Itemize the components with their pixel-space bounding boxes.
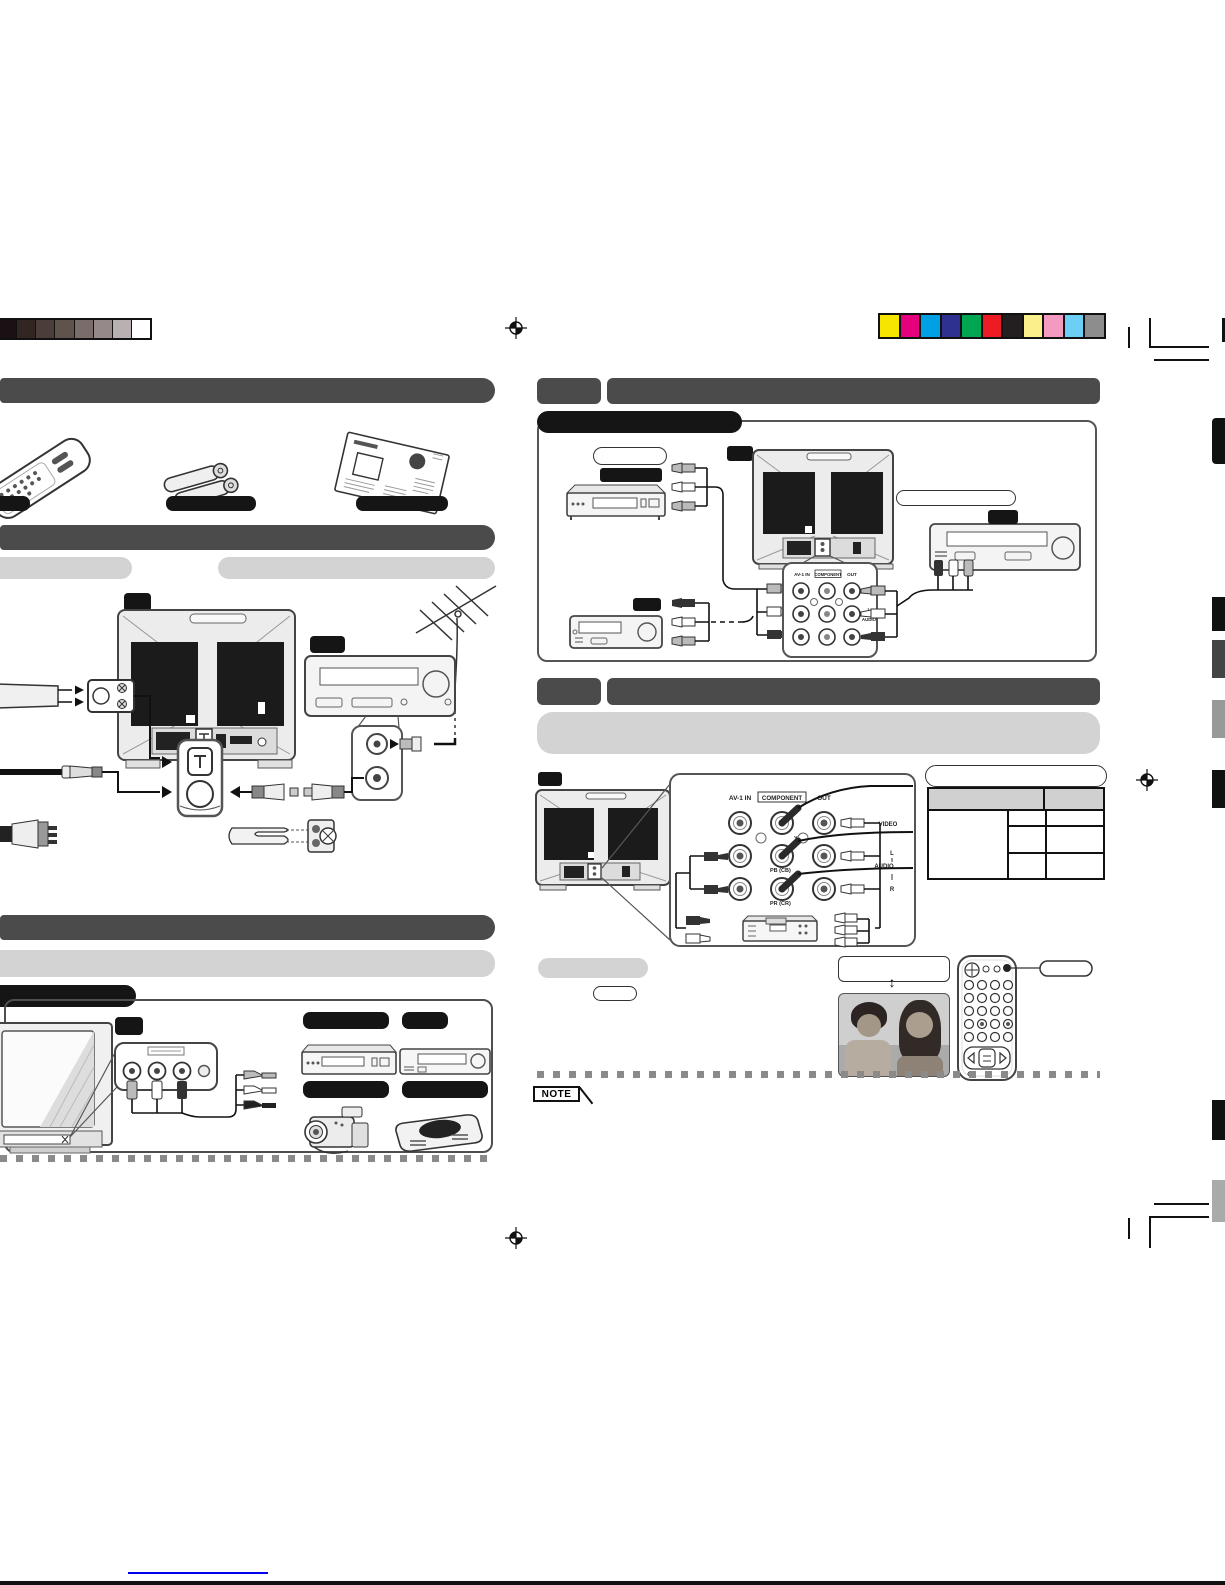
grayscale-calibration-strip [0,318,152,340]
cable-prep-adapter [229,820,336,852]
device-label-vcr [988,510,1018,524]
color-swatch [1083,315,1104,337]
av-connection-tab [537,411,742,433]
component-connection-diagram: AV-1 IN COMPONENT OUT Y PB (CB) PR (CR) … [530,768,920,955]
table-cell-span [929,809,1009,878]
note-label: NOTE [542,1089,572,1100]
color-swatch [899,315,920,337]
jack-row-l: L [890,851,894,857]
rear-jack-panel-callout: AV-1 IN COMPONENT OUT VIDEO L AUDIO R [783,563,877,657]
rca-cable-trio-dvd [672,463,723,580]
subheading-pill-2 [218,557,495,579]
photo-boy-face [857,1014,881,1037]
jack-col-av1in: AV-1 IN [729,795,752,802]
color-swatch [919,315,940,337]
registration-crosshair-right [1136,769,1158,791]
button-callout-pill [1040,961,1092,976]
vcr-illustration-left [570,616,662,648]
trim-mark [1128,1218,1130,1239]
tv-rear-illustration [536,790,670,890]
table-header-row [929,789,1103,811]
accessory-label-manual [356,496,448,511]
color-swatch [1022,315,1043,337]
component-subheading-bar [537,712,1100,754]
grayscale-swatch [112,320,131,338]
edge-mark [1212,418,1225,464]
grayscale-swatch [131,320,150,338]
subheading-pill [538,958,648,978]
step-tag [538,772,562,786]
button-callout-pill [593,986,637,1001]
device-label-camcorder [303,1081,389,1098]
remote-nav-cluster [964,1047,1010,1069]
manual-page: GAME [0,0,1225,1585]
device-callout-vcr [896,490,1016,506]
section-header-front-av [0,915,495,940]
signal-table [927,787,1105,880]
edge-mark [1212,700,1225,738]
step-tag [310,636,345,653]
trim-mark [1149,1216,1151,1248]
dvd-player-illustration [567,485,665,520]
jack-row-r: R [890,887,895,893]
device-label-game [402,1081,488,1098]
device-label-vcr [402,1012,448,1029]
rca-cable-trio-vcr-left [672,598,741,646]
trim-mark [1128,327,1130,348]
accessory-label-batteries [166,496,256,511]
dvd-player-illustration-small [743,916,817,941]
accessory-label-remote [0,496,30,511]
edge-mark [1212,1180,1225,1222]
note-tag: NOTE [533,1086,580,1102]
color-swatch [1063,315,1084,337]
subheading-pill-1 [0,557,132,579]
section-divider-dotted [537,1071,1100,1078]
section-header-accessories [0,378,495,403]
av-cable-trio [236,1071,276,1109]
table-col-divider [1045,809,1047,878]
jack-row-video: VIDEO [879,822,898,828]
section-header-antenna [0,525,495,550]
trim-mark [1149,1216,1209,1218]
coax-cable [0,766,172,798]
step-number-box-1 [537,378,601,404]
table-header-divider [1043,789,1045,809]
color-swatch [1001,315,1022,337]
component-label-pr: PR (CR) [770,901,791,907]
device-callout-dvd [593,447,667,465]
edge-mark [1212,640,1225,678]
updown-arrow: ↕ [884,974,900,990]
device-label-dvd [600,468,662,482]
color-swatch [981,315,1002,337]
grayscale-swatch [35,320,54,338]
edge-mark [1212,1100,1225,1140]
antenna-connection-diagram [0,578,500,908]
jack-col-av1in: AV-1 IN [794,572,810,577]
camcorder-illustration [305,1107,368,1153]
remote-input-button [1003,964,1011,972]
vcr-illustration-2 [400,1049,490,1074]
tv-antenna-terminal-callout [178,740,222,816]
device-label-dvd [303,1012,389,1029]
jack-col-component: COMPONENT [814,572,842,577]
color-swatch [1042,315,1063,337]
antenna-feed-cable [390,737,455,751]
tv-rear-illustration-small [753,450,893,572]
grayscale-swatch [16,320,35,338]
section-header-av-connection [607,378,1100,404]
tv-front-illustration [0,1023,112,1153]
game-console-illustration: GAME [396,1115,482,1151]
trim-mark [1154,359,1209,361]
vcr-to-tv-cable [230,778,364,800]
page-bottom-edge [0,1581,1225,1585]
footer-link-line [128,1572,268,1574]
vcr-illustration [305,656,455,716]
connector-piece [0,820,57,848]
table-title-pill [925,765,1107,787]
trim-mark [1149,318,1151,348]
color-calibration-strip [878,313,1106,339]
grayscale-swatch [93,320,112,338]
trim-mark [1149,346,1209,348]
tv-screen-photo [838,993,950,1077]
color-swatch [880,315,899,337]
photo-girl-face [906,1012,933,1038]
step-tag [633,598,661,611]
dvd-player-illustration [302,1045,396,1074]
registration-crosshair-top [505,317,527,339]
section-divider-dotted [0,1155,492,1162]
note-slash [579,1087,594,1105]
subheading-bar [0,950,495,977]
step-tag [115,1017,143,1035]
edge-mark [1212,770,1225,808]
registration-crosshair-bottom [505,1227,527,1249]
trim-mark [1154,1203,1209,1205]
color-swatch [940,315,961,337]
table-row-line [1007,825,1103,827]
color-swatch [960,315,981,337]
vcr-antenna-jacks-callout [352,716,402,800]
grayscale-swatch [54,320,73,338]
edge-mark [1212,597,1225,631]
jack-col-out: OUT [847,572,857,577]
table-row-line [1007,852,1103,854]
grayscale-swatch [74,320,93,338]
step-tag [727,446,753,461]
step-number-box-2 [537,678,601,705]
grayscale-swatch [0,320,16,338]
component-label-pb: PB (CB) [770,868,791,874]
jack-col-component: COMPONENT [762,795,802,802]
remote-control-diagram [952,952,1102,1087]
section-header-component [607,678,1100,705]
